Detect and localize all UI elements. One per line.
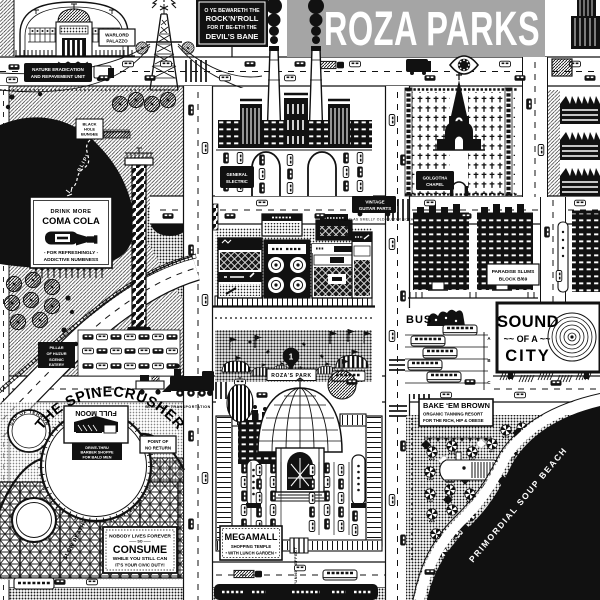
svg-text:NATURE ERADICATION: NATURE ERADICATION (32, 67, 84, 72)
svg-text:EATERY: EATERY (49, 362, 65, 367)
svg-text:ROCK’N’ROLL: ROCK’N’ROLL (206, 14, 259, 23)
svg-text:COMA COLA: COMA COLA (42, 215, 100, 226)
svg-text:PARADISE SLUMS: PARADISE SLUMS (492, 269, 535, 275)
svg-text:1: 1 (289, 353, 294, 362)
svg-text:ROZA PARKS: ROZA PARKS (324, 1, 540, 55)
svg-text:BLACKTOP TRANSPORTATION: BLACKTOP TRANSPORTATION (145, 405, 210, 409)
svg-text:CONSUME: CONSUME (113, 544, 167, 556)
svg-text:BAKE ‘EM BROWN: BAKE ‘EM BROWN (423, 401, 490, 410)
svg-text:GUITAR PARTS: GUITAR PARTS (359, 206, 391, 211)
svg-text:SHOPPING TEMPLE: SHOPPING TEMPLE (231, 544, 271, 549)
svg-text:MEGAMALL: MEGAMALL (224, 532, 277, 542)
svg-text:ADDICTIVE NUMBNESS: ADDICTIVE NUMBNESS (44, 257, 99, 263)
svg-text:FOR BALD MEN: FOR BALD MEN (82, 455, 111, 459)
svg-text:• WITH LUNCH GARDEN •: • WITH LUNCH GARDEN • (225, 551, 277, 556)
svg-text:DRIVE-THRU: DRIVE-THRU (85, 446, 109, 450)
svg-text:IT’S YOUR CIVIC DUTY!: IT’S YOUR CIVIC DUTY! (115, 563, 165, 568)
svg-text:—— SO ——: —— SO —— (129, 540, 151, 544)
svg-text:( READ AS SMELLY OLD GUITAR SC: ( READ AS SMELLY OLD GUITAR SCRAPS ) (338, 218, 422, 222)
svg-text:BLOCK B/69: BLOCK B/69 (499, 277, 528, 283)
svg-text:POINT OF: POINT OF (148, 439, 169, 444)
svg-text:WHILE YOU STILL CAN: WHILE YOU STILL CAN (113, 556, 168, 562)
svg-text:OF HUZUR: OF HUZUR (46, 351, 66, 356)
svg-text:BUNGEE: BUNGEE (81, 132, 98, 137)
svg-text:ORGANIC TANNING RESORT: ORGANIC TANNING RESORT (423, 412, 483, 417)
svg-text:NO RETURN: NO RETURN (145, 446, 171, 451)
svg-text:WARLORD: WARLORD (105, 33, 129, 38)
svg-text:ROZA’S PARK: ROZA’S PARK (271, 373, 311, 379)
svg-text:PILLAR: PILLAR (49, 345, 63, 350)
svg-text:- FOR REFRESHINGLY -: - FOR REFRESHINGLY - (44, 250, 99, 256)
svg-text:ELECTRIC: ELECTRIC (226, 179, 248, 184)
svg-text:FOR IT BE-ETH THE: FOR IT BE-ETH THE (207, 25, 257, 31)
svg-text:BUS: BUS (406, 314, 432, 326)
svg-text:B: B (487, 358, 490, 363)
svg-text:DEVIL’S BANE: DEVIL’S BANE (206, 32, 259, 41)
svg-text:~~ OF A ~~: ~~ OF A ~~ (504, 334, 551, 344)
svg-text:CHAPEL: CHAPEL (426, 182, 444, 187)
svg-text:FOR THE RICH, HIP & OBESE: FOR THE RICH, HIP & OBESE (423, 418, 484, 423)
svg-text:GOLGOTHA: GOLGOTHA (423, 176, 448, 181)
svg-text:VINTAGE: VINTAGE (365, 200, 384, 205)
svg-text:BARBER SHOPPE: BARBER SHOPPE (80, 451, 114, 455)
svg-text:GENERAL: GENERAL (226, 172, 247, 177)
svg-text:CITY: CITY (505, 347, 551, 365)
svg-text:AND REPAVEMENT UNIT: AND REPAVEMENT UNIT (31, 74, 86, 79)
svg-text:FULL MOON: FULL MOON (75, 409, 116, 416)
svg-text:PALAZZO: PALAZZO (106, 39, 128, 44)
